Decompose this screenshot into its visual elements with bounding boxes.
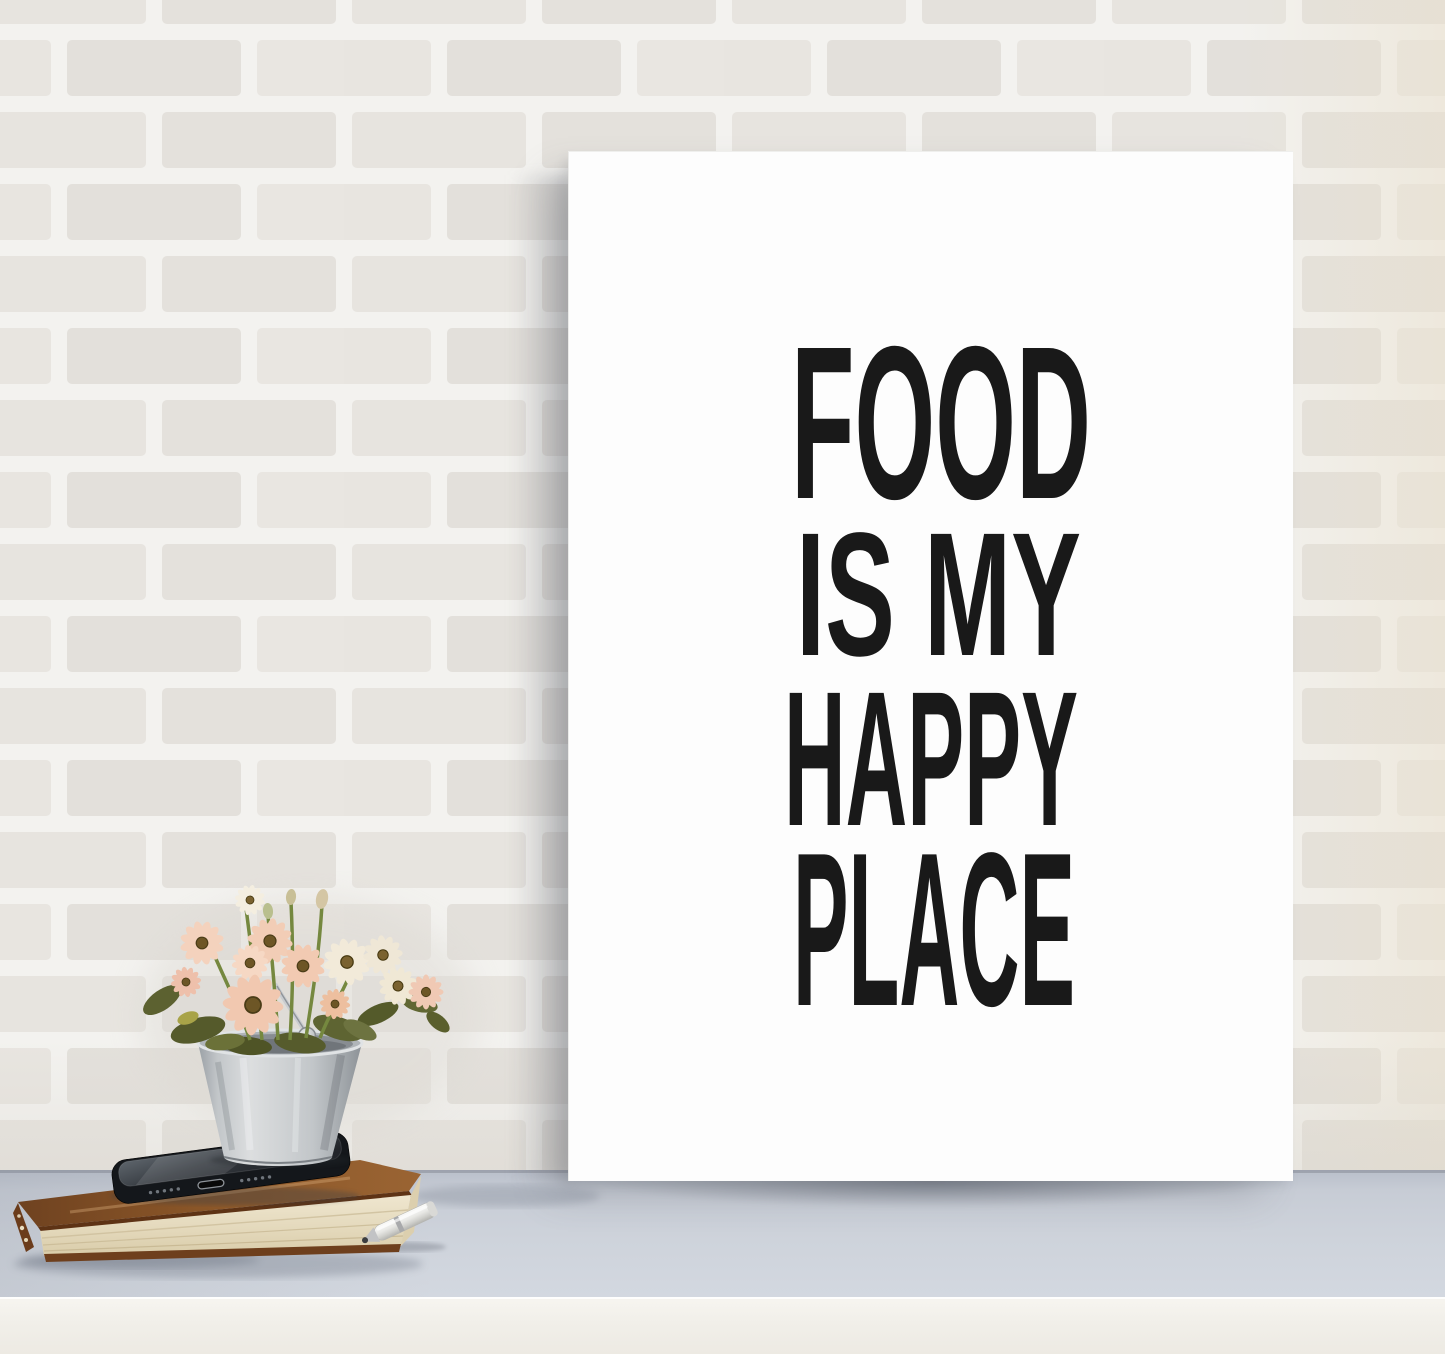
book-fray-fleck: [17, 1214, 21, 1218]
bucket-streak: [295, 1058, 298, 1152]
still-life-props: [0, 0, 1445, 1354]
poster-corner-shadow: [410, 1185, 600, 1207]
book-fray-fleck: [20, 1226, 24, 1230]
product-photo-scene: FOOD IS MY HAPPY PLACE: [0, 0, 1445, 1354]
book-fray-fleck: [24, 1238, 28, 1242]
